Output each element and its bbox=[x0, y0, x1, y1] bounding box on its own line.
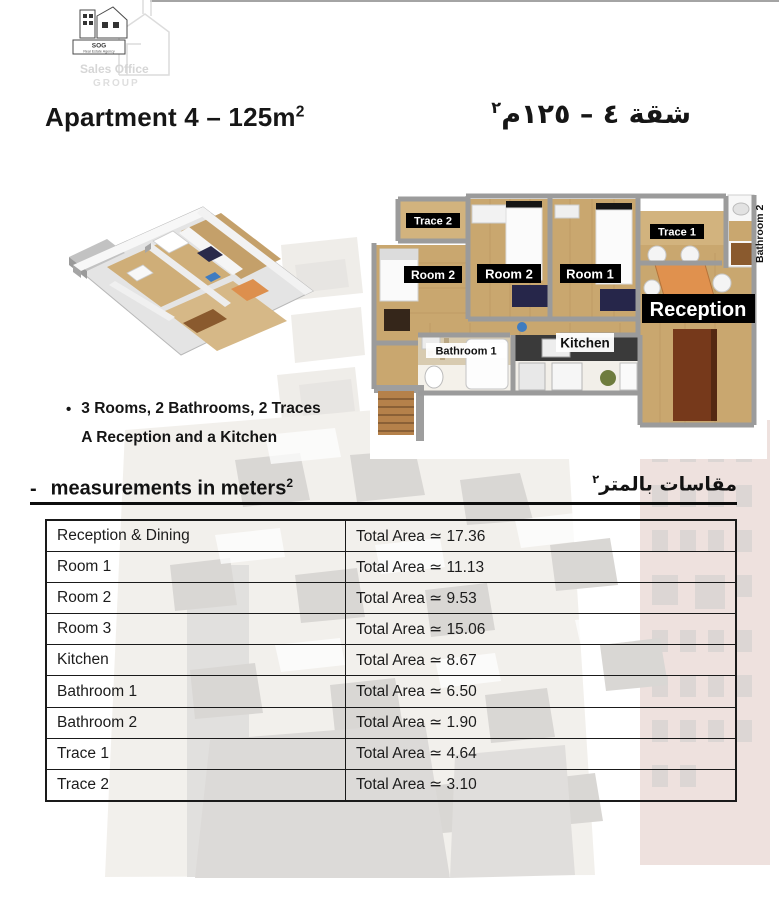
room-name-cell: Trace 1 bbox=[46, 738, 346, 769]
logo-watermark-line1: Sales Office bbox=[80, 62, 149, 76]
label-trace2: Trace 2 bbox=[406, 213, 460, 228]
table-row: Room 1 Total Area ≃ 11.13 bbox=[46, 552, 736, 583]
title-en-text: Apartment 4 – 125m bbox=[45, 102, 296, 132]
table-row: Room 3 Total Area ≃ 15.06 bbox=[46, 614, 736, 645]
apartment-3d-render bbox=[55, 185, 330, 380]
table-row: Trace 2 Total Area ≃ 3.10 bbox=[46, 769, 736, 801]
area-value-cell: Total Area ≃ 6.50 bbox=[346, 676, 737, 707]
measurements-heading-english: -measurements in meters2 bbox=[30, 476, 293, 501]
wardrobe bbox=[472, 205, 506, 223]
title-ar-sup: ٢ bbox=[491, 98, 501, 117]
feature-line-2: A Reception and a Kitchen bbox=[81, 429, 320, 447]
table-row: Bathroom 2 Total Area ≃ 1.90 bbox=[46, 707, 736, 738]
svg-text:Bathroom 1: Bathroom 1 bbox=[435, 346, 496, 358]
heading-ar-text: مقاسات بالمتر bbox=[599, 473, 737, 495]
page-top-edge-line bbox=[150, 0, 779, 2]
heading-en-text: measurements in meters bbox=[51, 478, 287, 500]
area-value-cell: Total Area ≃ 1.90 bbox=[346, 707, 737, 738]
svg-text:Kitchen: Kitchen bbox=[560, 336, 610, 351]
table-row: Room 2 Total Area ≃ 9.53 bbox=[46, 583, 736, 614]
svg-text:Reception: Reception bbox=[650, 299, 747, 321]
area-value-cell: Total Area ≃ 11.13 bbox=[346, 552, 737, 583]
bathroom2-area bbox=[728, 195, 754, 267]
table-row: Bathroom 1 Total Area ≃ 6.50 bbox=[46, 676, 736, 707]
label-trace1: Trace 1 bbox=[650, 224, 704, 239]
rug-room1 bbox=[600, 289, 636, 311]
sog-logo: SOG Real Estate Agency Sales Office GROU… bbox=[55, 0, 175, 100]
page-title-arabic: شقة ٤ – ١٢٥م٢ bbox=[491, 98, 691, 130]
svg-text:Room 2: Room 2 bbox=[411, 268, 455, 282]
feature-list: • 3 Rooms, 2 Bathrooms, 2 Traces A Recep… bbox=[66, 400, 321, 458]
room-name-cell: Room 3 bbox=[46, 614, 346, 645]
svg-text:Trace 2: Trace 2 bbox=[414, 216, 452, 228]
stairs bbox=[374, 385, 424, 441]
plant bbox=[600, 370, 616, 386]
area-value-cell: Total Area ≃ 4.64 bbox=[346, 738, 737, 769]
apartment-floor-plan: Trace 2 Room 2 Room 2 Room 1 Trace 1 Rec… bbox=[370, 193, 767, 459]
feature-line-1: 3 Rooms, 2 Bathrooms, 2 Traces bbox=[81, 400, 320, 418]
room-name-cell: Reception & Dining bbox=[46, 520, 346, 552]
dresser bbox=[384, 309, 410, 331]
logo-acronym: SOG bbox=[92, 43, 106, 50]
svg-text:Room 2: Room 2 bbox=[485, 267, 533, 282]
label-bathroom2: Bathroom 2 bbox=[754, 205, 766, 264]
room-name-cell: Bathroom 1 bbox=[46, 676, 346, 707]
svg-text:Trace 1: Trace 1 bbox=[658, 227, 696, 239]
area-value-cell: Total Area ≃ 9.53 bbox=[346, 583, 737, 614]
area-value-cell: Total Area ≃ 15.06 bbox=[346, 614, 737, 645]
room-name-cell: Room 2 bbox=[46, 583, 346, 614]
room-name-cell: Trace 2 bbox=[46, 769, 346, 801]
toilet bbox=[425, 366, 443, 388]
label-reception: Reception bbox=[642, 294, 755, 323]
title-en-sup: 2 bbox=[296, 103, 305, 120]
label-bathroom1: Bathroom 1 bbox=[426, 343, 506, 358]
compass-icon bbox=[517, 322, 527, 332]
logo-tagline: Real Estate Agency bbox=[83, 50, 115, 54]
cabinet bbox=[673, 329, 711, 421]
area-value-cell: Total Area ≃ 3.10 bbox=[346, 769, 737, 801]
stove bbox=[552, 363, 582, 390]
brochure-page: SOG Real Estate Agency Sales Office GROU… bbox=[0, 0, 779, 900]
table-row: Trace 1 Total Area ≃ 4.64 bbox=[46, 738, 736, 769]
measurements-table: Reception & Dining Total Area ≃ 17.36 Ro… bbox=[45, 519, 737, 802]
heading-underline bbox=[30, 502, 737, 505]
measurements-heading-arabic: مقاسات بالمتر٢ bbox=[592, 472, 737, 495]
bullet-icon: • bbox=[66, 400, 71, 458]
room-name-cell: Bathroom 2 bbox=[46, 707, 346, 738]
area-value-cell: Total Area ≃ 17.36 bbox=[346, 520, 737, 552]
table-row: Reception & Dining Total Area ≃ 17.36 bbox=[46, 520, 736, 552]
label-room2-left: Room 2 bbox=[404, 266, 462, 283]
label-room2-mid: Room 2 bbox=[477, 264, 541, 283]
rug-room2 bbox=[512, 285, 548, 307]
logo-watermark-line2: GROUP bbox=[93, 78, 140, 89]
page-title-english: Apartment 4 – 125m2 bbox=[45, 102, 305, 133]
area-value-cell: Total Area ≃ 8.67 bbox=[346, 645, 737, 676]
room-name-cell: Room 1 bbox=[46, 552, 346, 583]
room-name-cell: Kitchen bbox=[46, 645, 346, 676]
fridge bbox=[519, 363, 545, 390]
table-row: Kitchen Total Area ≃ 8.67 bbox=[46, 645, 736, 676]
title-ar-text: شقة ٤ – ١٢٥م bbox=[501, 99, 691, 130]
heading-en-sup: 2 bbox=[286, 476, 293, 490]
label-kitchen: Kitchen bbox=[556, 333, 614, 352]
label-room1: Room 1 bbox=[560, 264, 621, 283]
heading-dash: - bbox=[30, 478, 37, 500]
svg-text:Room 1: Room 1 bbox=[566, 267, 614, 282]
